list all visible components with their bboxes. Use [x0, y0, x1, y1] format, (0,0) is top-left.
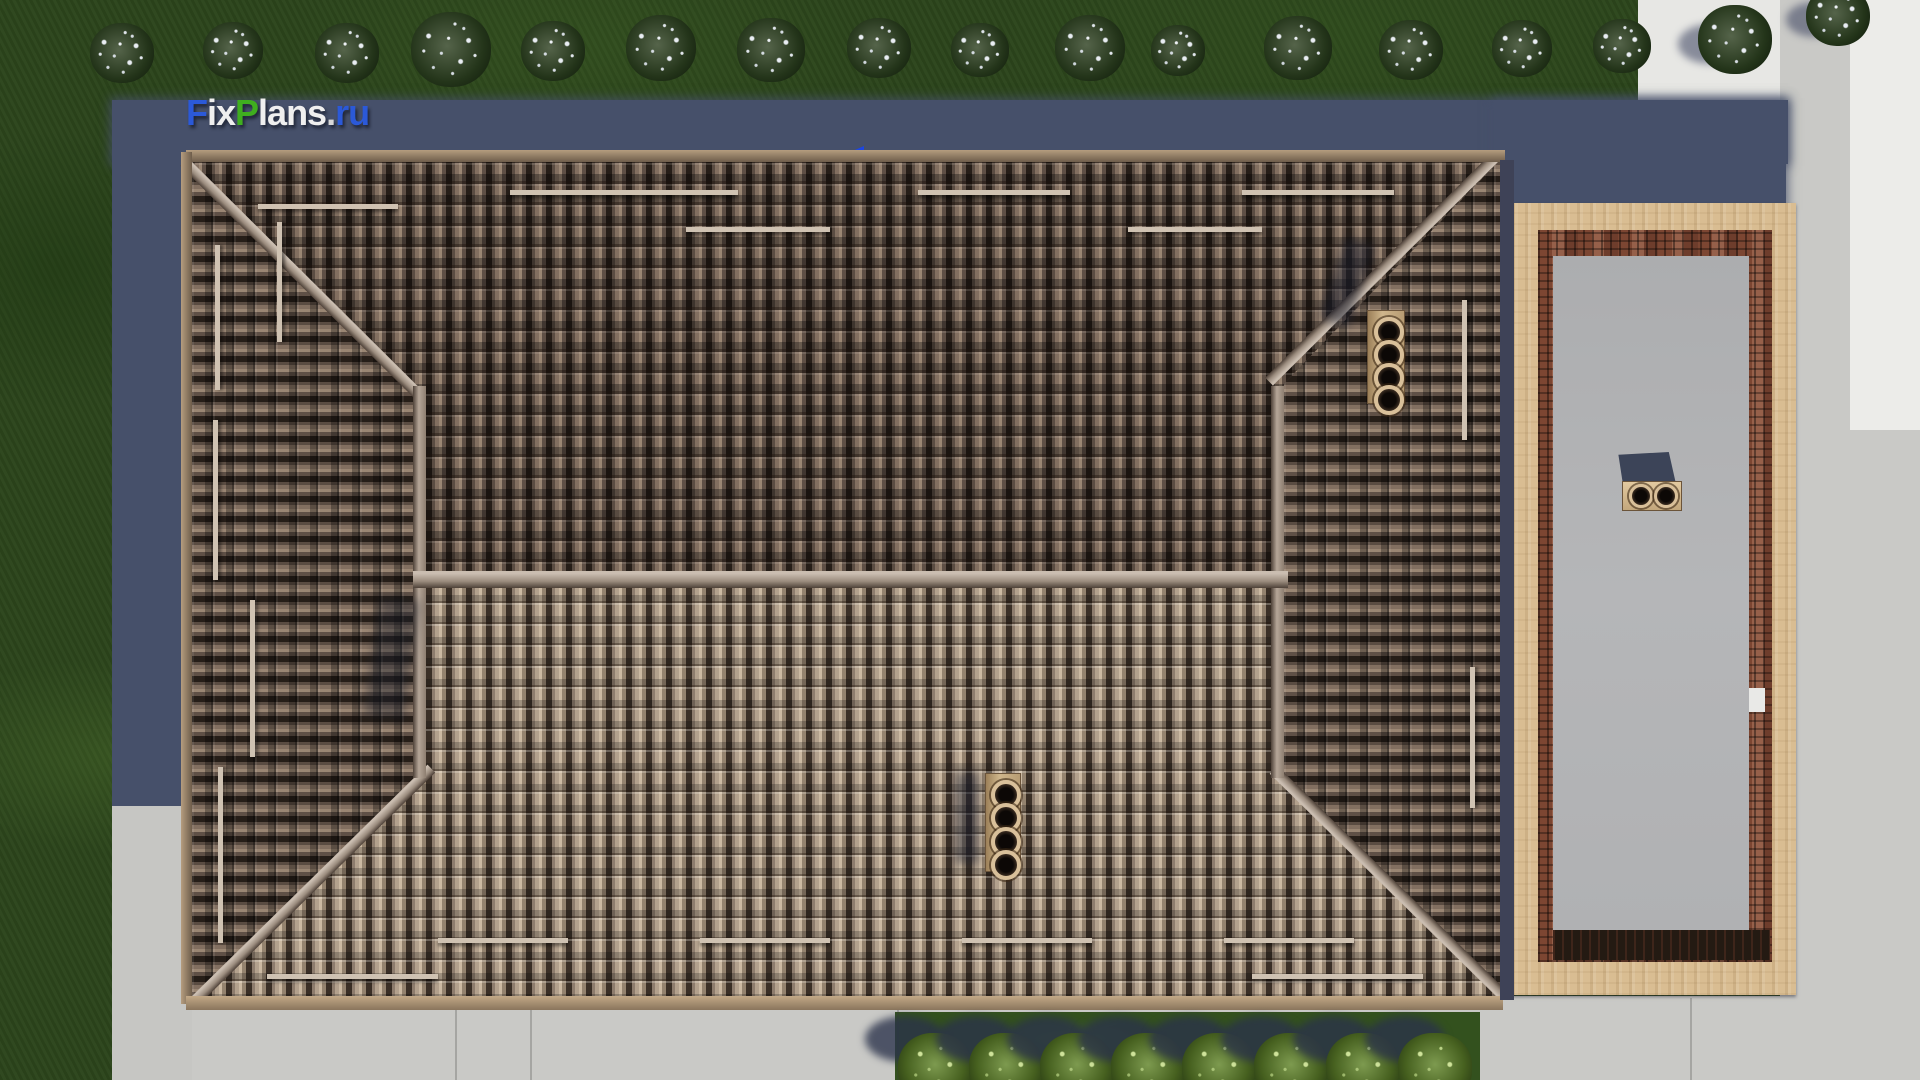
snow-guard-bar — [1242, 190, 1394, 195]
pavement-left-path — [112, 800, 192, 1080]
main-ridge-cap — [413, 571, 1288, 588]
blossom-tree — [1151, 25, 1205, 76]
building-shadow-terrace — [1494, 100, 1786, 208]
terrace-slab — [1553, 256, 1749, 930]
snow-guard-bar — [258, 204, 398, 209]
terrace-notch — [1749, 688, 1765, 712]
snow-guard-bar — [1224, 938, 1354, 943]
pavement-joint — [1690, 998, 1692, 1080]
snow-guard-bar — [277, 222, 282, 342]
chimney-vent — [1374, 385, 1404, 415]
watermark-letter-segment: P — [235, 92, 258, 133]
snow-guard-bar — [918, 190, 1070, 195]
pavement-joint — [530, 998, 532, 1080]
north-chimney — [1367, 310, 1405, 404]
blossom-tree — [847, 18, 911, 78]
blossom-tree — [951, 23, 1009, 77]
watermark-letter-segment: . — [326, 92, 335, 133]
blossom-tree — [1593, 19, 1651, 73]
snow-guard-bar — [700, 938, 830, 943]
snow-guard-bar — [215, 245, 220, 390]
building-shadow-left — [112, 100, 192, 806]
blossom-tree — [521, 21, 585, 81]
snow-guard-bar — [218, 767, 223, 943]
gutter-left — [181, 152, 192, 1004]
blossom-tree — [1698, 5, 1772, 74]
blossom-tree — [411, 12, 491, 87]
watermark-letter-segment: ru — [335, 92, 369, 133]
chimney-vent — [991, 850, 1021, 880]
blossom-tree — [1055, 15, 1125, 81]
snow-guard-bar — [250, 600, 255, 757]
watermark-letter-segment: F — [186, 92, 207, 133]
terrace-dark-strip — [1553, 930, 1770, 960]
snow-guard-bar — [1252, 974, 1423, 979]
snow-guard-bar — [438, 938, 568, 943]
chimney-vent — [1654, 484, 1678, 508]
blossom-tree — [1492, 20, 1553, 77]
gutter-top — [186, 150, 1505, 162]
blossom-tree — [203, 22, 264, 79]
watermark-letter-segment: ix — [207, 92, 235, 133]
snow-guard-bar — [1470, 667, 1475, 808]
pavement-joint — [455, 998, 457, 1080]
chimney-vent — [1629, 484, 1653, 508]
pavement-highlight — [1850, 0, 1920, 430]
snow-guard-bar — [962, 938, 1092, 943]
snow-guard-bar — [1128, 227, 1262, 232]
blossom-tree — [737, 18, 804, 81]
fixplans-watermark: FixPlans.ru — [186, 92, 369, 134]
terrace-chimney — [1622, 481, 1682, 511]
blossom-tree — [1379, 20, 1443, 80]
blossom-tree — [315, 23, 379, 83]
snow-guard-bar — [510, 190, 738, 195]
blossom-tree — [90, 23, 154, 83]
blossom-tree — [626, 15, 696, 81]
snow-guard-bar — [1462, 300, 1467, 440]
snow-guard-bar — [213, 420, 218, 580]
snow-guard-bar — [686, 227, 830, 232]
roof-terrace-gap-shadow — [1500, 160, 1514, 1000]
south-chimney — [985, 773, 1021, 872]
watermark-letter-segment: lans — [258, 92, 326, 133]
gutter-bottom — [186, 996, 1503, 1010]
snow-guard-bar — [267, 974, 438, 979]
aerial-roof-render: FixPlans.ru — [0, 0, 1920, 1080]
blossom-tree — [1264, 16, 1331, 79]
chimney-shadow — [955, 772, 979, 864]
